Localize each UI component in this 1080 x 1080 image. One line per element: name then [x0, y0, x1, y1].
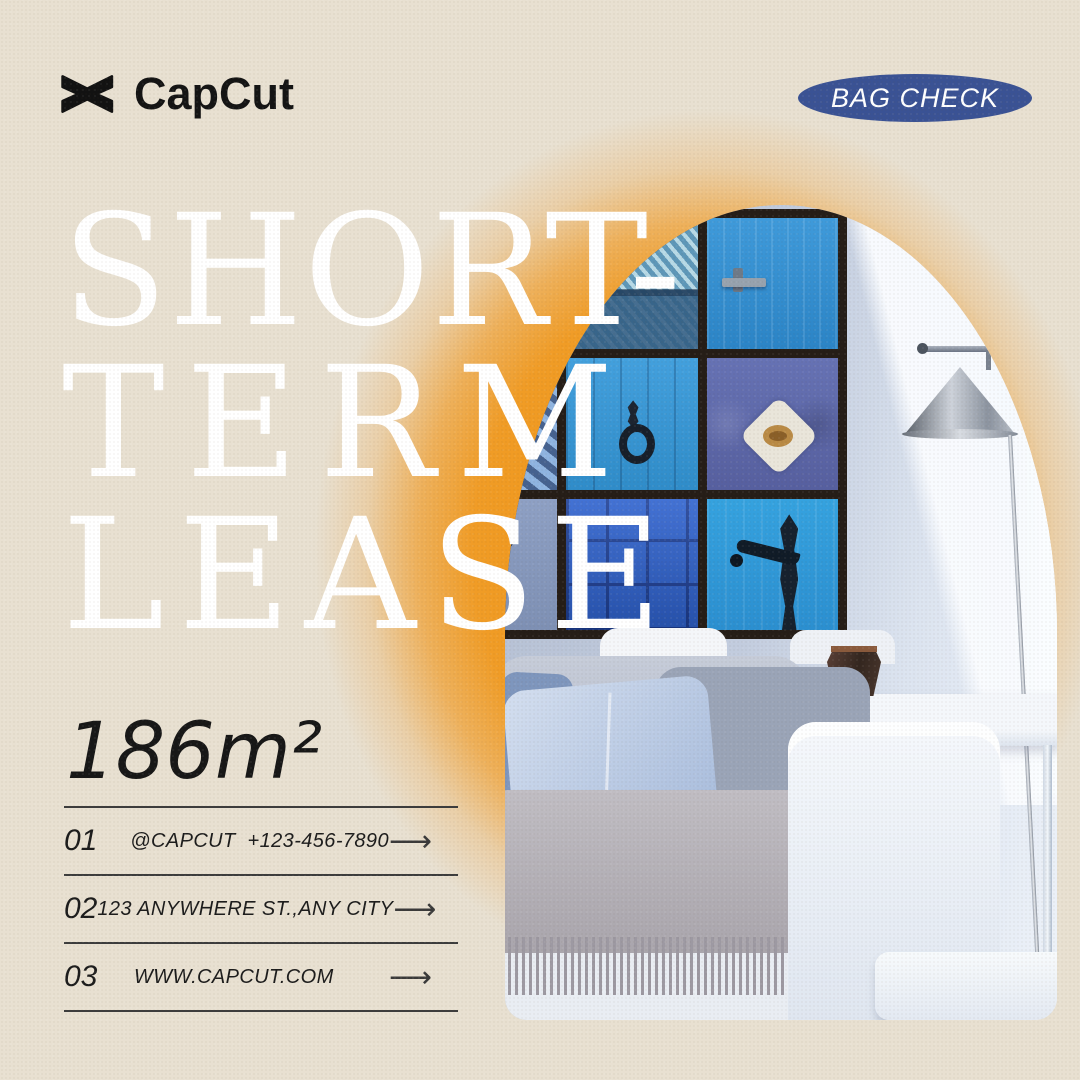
door-photo	[707, 358, 838, 489]
row-text: @CAPCUT +123-456-7890	[130, 830, 389, 853]
capcut-logo: CapCut	[60, 68, 294, 120]
arrow-right-icon: ⟶	[389, 824, 458, 859]
floor-lamp-stem	[986, 350, 991, 370]
area-value: 186m²	[66, 710, 458, 794]
contact-row-2: 02 123 ANYWHERE ST.,ANY CITY ⟶	[64, 874, 458, 942]
row-text: 123 ANYWHERE ST.,ANY CITY	[97, 898, 393, 921]
contact-row-3: 03 WWW.CAPCUT.COM ⟶	[64, 942, 458, 1012]
contact-rows: 01 @CAPCUT +123-456-7890 ⟶ 02 123 ANYWHE…	[64, 806, 458, 1012]
capcut-logo-text: CapCut	[134, 68, 294, 120]
row-number: 01	[64, 824, 130, 858]
headline-line-1: SHORT-	[62, 196, 682, 348]
capcut-logo-icon	[60, 72, 118, 116]
contact-row-1: 01 @CAPCUT +123-456-7890 ⟶	[64, 806, 458, 874]
headline-line-2: TERM	[62, 348, 682, 500]
row-text: WWW.CAPCUT.COM	[134, 966, 389, 989]
floor-lamp-finial	[917, 343, 928, 354]
arrow-right-icon: ⟶	[389, 960, 458, 995]
poster-canvas: SHORT- TERM LEASE CapCut BAG CHECK 186m²…	[0, 0, 1080, 1080]
headline-line-3: LEASE	[62, 500, 682, 652]
vase-rim	[831, 646, 877, 652]
row-number: 03	[64, 960, 134, 994]
info-block: 186m² 01 @CAPCUT +123-456-7890 ⟶ 02 123 …	[64, 710, 458, 1012]
floor-lamp-shade-rim	[902, 429, 1018, 439]
bag-check-badge: BAG CHECK	[798, 74, 1032, 122]
coffee-table-top	[875, 952, 1057, 1020]
arrow-right-icon: ⟶	[393, 892, 462, 927]
row-number: 02	[64, 892, 97, 926]
door-photo	[707, 499, 838, 630]
door-photo	[707, 218, 838, 349]
bag-check-label: BAG CHECK	[831, 83, 999, 114]
headline: SHORT- TERM LEASE	[62, 196, 682, 652]
